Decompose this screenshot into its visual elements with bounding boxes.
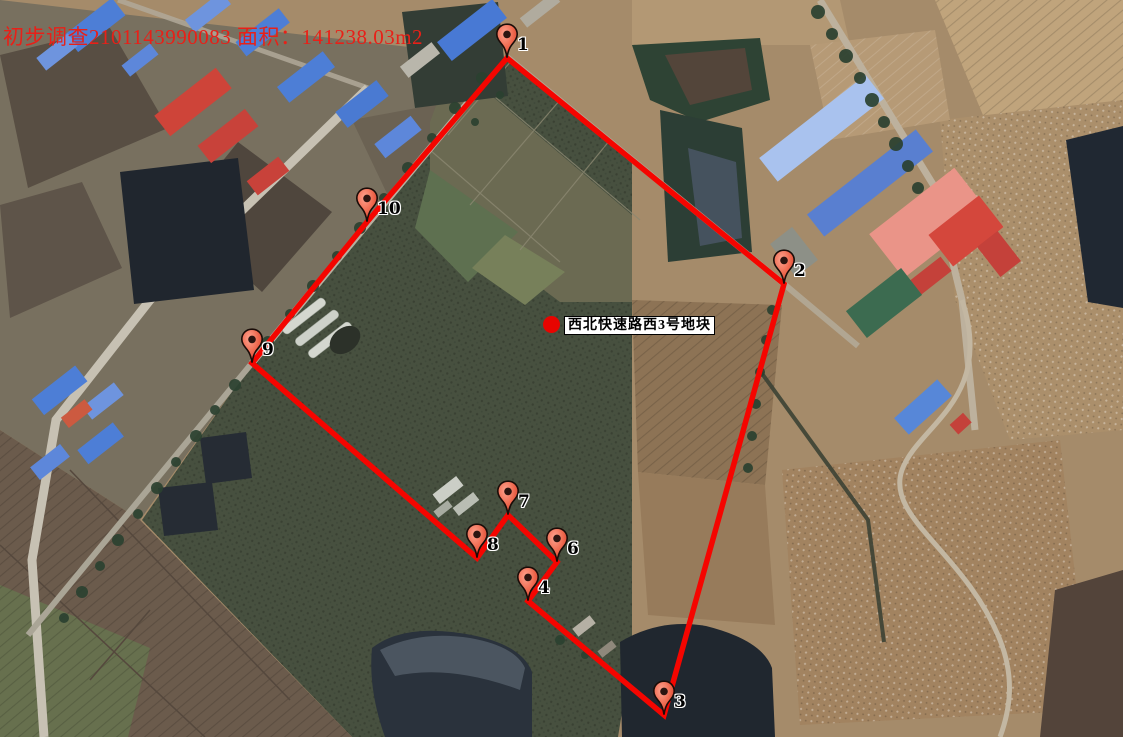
parcel-center-dot	[543, 316, 560, 333]
placemark-pin-9[interactable]	[240, 328, 264, 364]
placemark-number-4: 4	[538, 580, 550, 597]
placemark-number-8: 8	[487, 537, 499, 554]
satellite-imagery	[0, 0, 1123, 737]
placemark-pin-3[interactable]	[652, 680, 676, 716]
placemark-number-2: 2	[794, 263, 806, 280]
placemark-number-10: 10	[377, 201, 401, 218]
placemark-pin-2[interactable]	[772, 249, 796, 285]
placemark-pin-4[interactable]	[516, 566, 540, 602]
placemark-pin-10[interactable]	[355, 187, 379, 223]
map-canvas[interactable]: 1 2 3 4	[0, 0, 1123, 737]
placemark-number-6: 6	[567, 541, 579, 558]
placemark-number-9: 9	[262, 342, 274, 359]
placemark-pin-6[interactable]	[545, 527, 569, 563]
placemark-pin-1[interactable]	[495, 23, 519, 59]
placemark-number-1: 1	[517, 37, 529, 54]
placemark-pin-7[interactable]	[496, 480, 520, 516]
placemark-number-7: 7	[518, 494, 530, 511]
placemark-number-3: 3	[674, 694, 686, 711]
parcel-name-label: 西北快速路西3号地块	[564, 316, 715, 335]
placemark-pin-8[interactable]	[465, 523, 489, 559]
survey-title-overlay: 初步调查2101143990083 面积：141238.03m2	[3, 21, 423, 51]
